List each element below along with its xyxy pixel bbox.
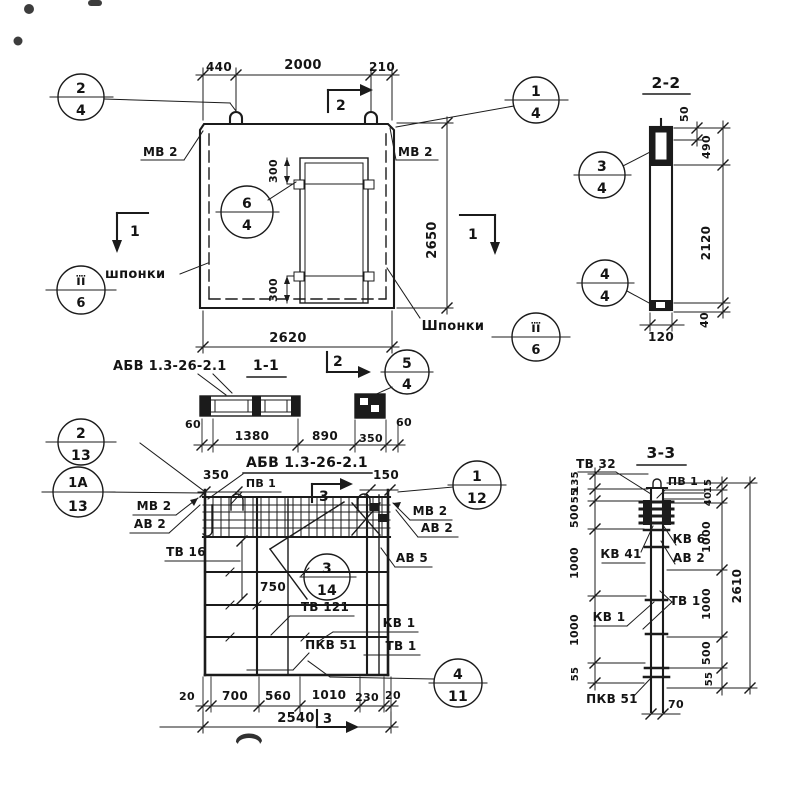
door-opening bbox=[300, 158, 368, 303]
keys-left: шпонки ïï 6 bbox=[46, 263, 208, 314]
dim-20-left: 20 bbox=[179, 690, 195, 703]
plan-title: АБВ 1.3-26-2.1 bbox=[246, 455, 368, 471]
dim-750: 750 bbox=[260, 580, 286, 594]
callout-6-4: 6 4 bbox=[216, 182, 296, 238]
blueprint-page: 300 300 440 2000 210 2 bbox=[0, 0, 800, 800]
section-3-3: 3-3 ТВ 32 ПВ 1 bbox=[568, 444, 757, 719]
dim-560: 560 bbox=[265, 689, 291, 703]
svg-text:2: 2 bbox=[76, 81, 86, 97]
svg-text:2: 2 bbox=[333, 354, 343, 370]
label-kv1-33: КВ 1 bbox=[593, 610, 626, 624]
label-av2-plan-left: АВ 2 bbox=[134, 517, 166, 531]
svg-text:12: 12 bbox=[467, 491, 487, 507]
svg-text:1000: 1000 bbox=[700, 521, 713, 553]
svg-text:500: 500 bbox=[700, 641, 713, 665]
label-pv1-33: ПВ 1 bbox=[668, 475, 698, 488]
plan-bottom-dims: 20 700 560 1010 230 20 2540 bbox=[160, 677, 401, 733]
dim-2540: 2540 bbox=[277, 711, 314, 726]
dim-70: 70 bbox=[668, 698, 684, 711]
mark-label: АБВ 1.3-26-2.1 bbox=[113, 359, 227, 374]
svg-text:14: 14 bbox=[317, 583, 337, 599]
svg-text:4: 4 bbox=[453, 667, 463, 683]
rebar-grid: 750 bbox=[203, 490, 390, 675]
callout-1-12: 1 12 bbox=[398, 461, 506, 509]
svg-text:1000: 1000 bbox=[568, 614, 581, 646]
svg-text:1000: 1000 bbox=[700, 588, 713, 620]
cut-marker-3-bottom: 3 bbox=[317, 710, 359, 733]
label-keys-left: шпонки bbox=[105, 267, 165, 282]
cut-marker-1-right: 1 bbox=[460, 215, 500, 255]
svg-text:500: 500 bbox=[568, 504, 581, 528]
dim-2120: 2120 bbox=[699, 226, 713, 261]
svg-text:13: 13 bbox=[71, 448, 91, 464]
label-tv16: ТВ 16 bbox=[166, 545, 206, 559]
svg-text:3: 3 bbox=[323, 712, 332, 727]
dim-60-left: 60 bbox=[185, 418, 201, 431]
dim-890: 890 bbox=[312, 429, 338, 443]
dim-150: 150 bbox=[373, 468, 399, 482]
label-pkv51-33: ПКВ 51 bbox=[586, 692, 638, 706]
lifting-loop-icon bbox=[230, 112, 242, 124]
svg-text:3: 3 bbox=[322, 561, 332, 577]
label-kv41: КВ 41 bbox=[600, 547, 641, 561]
label-mv2-left: МВ 2 bbox=[143, 145, 178, 159]
section-3-3-title: 3-3 bbox=[647, 444, 676, 462]
svg-text:1000: 1000 bbox=[568, 547, 581, 579]
dim-2620: 2620 bbox=[269, 331, 306, 346]
dim-490: 490 bbox=[700, 135, 713, 159]
cut-marker-1-left: 1 bbox=[112, 213, 148, 253]
svg-text:3: 3 bbox=[597, 159, 607, 175]
dim-120: 120 bbox=[648, 330, 674, 344]
svg-text:40: 40 bbox=[703, 492, 714, 507]
dim-230: 230 bbox=[355, 691, 379, 704]
slab-section bbox=[200, 394, 385, 418]
label-mv2-plan-right: МВ 2 bbox=[413, 504, 448, 518]
section-1-1: АБВ 1.3-26-2.1 1-1 5 4 bbox=[113, 350, 433, 452]
dim-2650: 2650 bbox=[425, 221, 440, 258]
dim-350: 350 bbox=[359, 432, 383, 445]
dim-440: 440 bbox=[206, 60, 232, 74]
dim-210: 210 bbox=[369, 60, 395, 74]
svg-text:1: 1 bbox=[472, 469, 482, 485]
label-tv32: ТВ 32 bbox=[576, 457, 616, 471]
dim-300-bottom: 300 bbox=[267, 278, 280, 302]
section-1-1-title: 1-1 bbox=[253, 358, 279, 374]
svg-text:1: 1 bbox=[531, 84, 541, 100]
label-kv1-plan: КВ 1 bbox=[383, 616, 416, 630]
callout-3-4: 3 4 bbox=[574, 152, 650, 198]
section-2-2-title: 2-2 bbox=[652, 74, 681, 92]
panel-drawing-svg: 300 300 440 2000 210 2 bbox=[0, 0, 800, 800]
dim-1010: 1010 bbox=[312, 688, 347, 702]
cut-marker-2-bottom: 2 bbox=[327, 352, 371, 378]
label-mv2-plan-left: МВ 2 bbox=[137, 499, 172, 513]
callout-2-13: 2 13 bbox=[46, 419, 116, 465]
panel-width-dim: 2620 bbox=[196, 311, 399, 353]
label-tv1-33: ТВ 1 bbox=[669, 594, 700, 608]
lifting-loop-icon bbox=[365, 112, 377, 124]
label-av5: АВ 5 bbox=[396, 551, 428, 565]
s33-left-dims: 135 55 500 1000 1000 55 bbox=[568, 468, 648, 690]
callout-5-4: 5 4 bbox=[372, 350, 433, 396]
label-pkv51-plan: ПКВ 51 bbox=[305, 638, 357, 652]
dim-2610: 2610 bbox=[730, 569, 744, 604]
svg-text:4: 4 bbox=[402, 377, 412, 393]
section-2-2: 2-2 50 490 2120 40 bbox=[574, 74, 730, 344]
svg-text:55: 55 bbox=[704, 672, 715, 687]
svg-text:6: 6 bbox=[242, 196, 252, 212]
svg-text:ïï: ïï bbox=[76, 274, 86, 289]
callout-1a-13: 1А 13 bbox=[42, 467, 115, 517]
keys-right: Шпонки ïï 6 bbox=[387, 268, 570, 361]
svg-text:55: 55 bbox=[570, 667, 581, 682]
callout-4-4: 4 4 bbox=[577, 260, 649, 306]
svg-text:4: 4 bbox=[531, 106, 541, 122]
dim-2000: 2000 bbox=[284, 58, 321, 73]
svg-text:5: 5 bbox=[402, 356, 412, 372]
svg-text:4: 4 bbox=[597, 181, 607, 197]
dim-40: 40 bbox=[698, 312, 711, 328]
callout-3-14: 3 14 bbox=[300, 554, 356, 600]
panel-elevation: 300 300 440 2000 210 2 bbox=[46, 58, 570, 378]
svg-text:4: 4 bbox=[242, 218, 252, 234]
svg-text:ïï: ïï bbox=[531, 321, 541, 336]
svg-text:6: 6 bbox=[531, 343, 540, 358]
svg-text:11: 11 bbox=[448, 689, 468, 705]
callout-2-4: 2 4 bbox=[50, 74, 236, 120]
svg-text:2: 2 bbox=[336, 98, 346, 114]
svg-text:6: 6 bbox=[76, 296, 85, 311]
svg-text:1: 1 bbox=[468, 227, 478, 243]
svg-text:13: 13 bbox=[68, 499, 88, 515]
cut-marker-2-top: 2 bbox=[328, 84, 373, 114]
label-keys-right: Шпонки bbox=[422, 319, 485, 334]
svg-text:4: 4 bbox=[600, 267, 610, 283]
dim-1380: 1380 bbox=[235, 429, 270, 443]
label-av2-plan-right: АВ 2 bbox=[421, 521, 453, 535]
section-1-1-dims: 60 1380 890 350 60 bbox=[185, 416, 412, 452]
dim-300-top: 300 bbox=[267, 159, 280, 183]
ink-smudge bbox=[236, 733, 262, 744]
s33-right-dims: 15 40 1000 1000 500 55 2610 bbox=[667, 477, 757, 695]
label-tv121: ТВ 121 bbox=[301, 600, 349, 614]
svg-text:4: 4 bbox=[76, 103, 86, 119]
svg-text:1: 1 bbox=[130, 224, 140, 240]
callout-1-4: 1 4 bbox=[396, 77, 568, 127]
svg-text:4: 4 bbox=[600, 289, 610, 305]
label-mv2-right: МВ 2 bbox=[398, 145, 433, 159]
label-pv1: ПВ 1 bbox=[246, 477, 276, 490]
dim-60-right: 60 bbox=[396, 416, 412, 429]
dim-20-right: 20 bbox=[385, 689, 401, 702]
svg-text:1А: 1А bbox=[68, 476, 88, 491]
svg-text:55: 55 bbox=[570, 489, 581, 504]
svg-text:2: 2 bbox=[76, 426, 86, 442]
label-tv1-plan: ТВ 1 bbox=[385, 639, 416, 653]
svg-text:15: 15 bbox=[703, 479, 714, 494]
dim-700: 700 bbox=[222, 689, 248, 703]
reinforcement-plan: АБВ 1.3-26-2.1 2 13 1А 13 350 ПВ 1 150 bbox=[42, 419, 506, 733]
dim-350-plan: 350 bbox=[203, 468, 229, 482]
dim-50: 50 bbox=[678, 106, 691, 122]
